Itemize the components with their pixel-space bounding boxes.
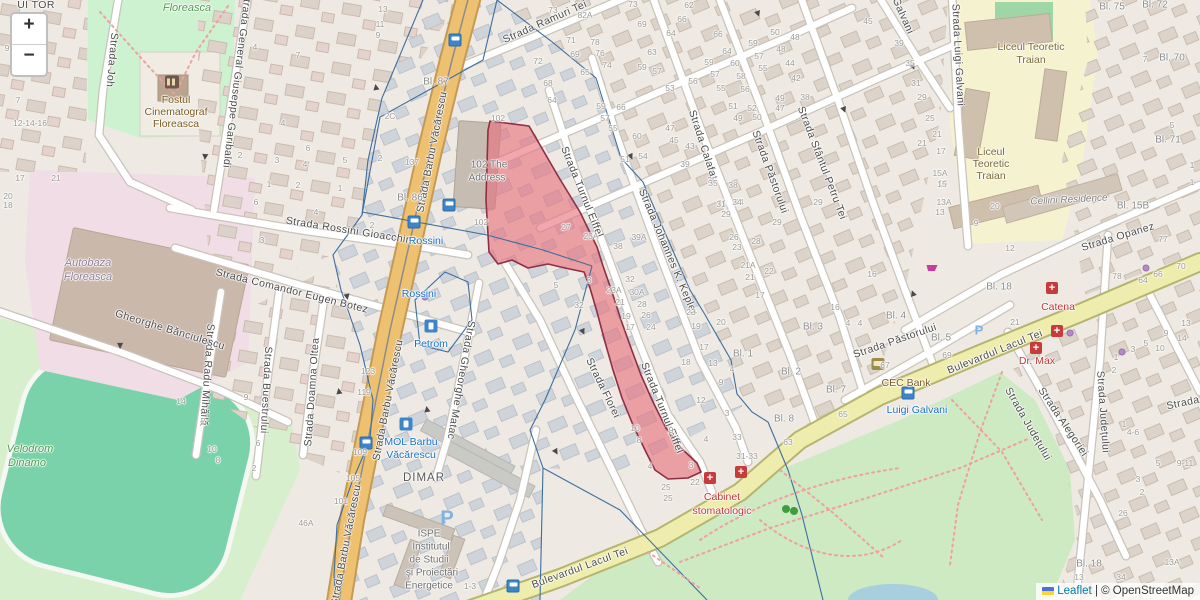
map-canvas[interactable]: PP+++++▶▶▶▶▶▶▶▶▶▶▶▶▶ Strada Barbu Văcăre…	[0, 0, 1200, 600]
zoom-control: + −	[10, 12, 48, 77]
map-tiles	[0, 0, 1200, 600]
attribution-bar: Leaflet | © OpenStreetMap	[1036, 583, 1200, 600]
openstreetmap-link[interactable]: © OpenStreetMap	[1101, 585, 1194, 597]
attribution-separator: |	[1095, 585, 1098, 597]
zoom-in-button[interactable]: +	[12, 14, 46, 45]
ukraine-flag-icon	[1042, 587, 1054, 595]
leaflet-link[interactable]: Leaflet	[1057, 585, 1092, 597]
zoom-out-button[interactable]: −	[12, 45, 46, 75]
